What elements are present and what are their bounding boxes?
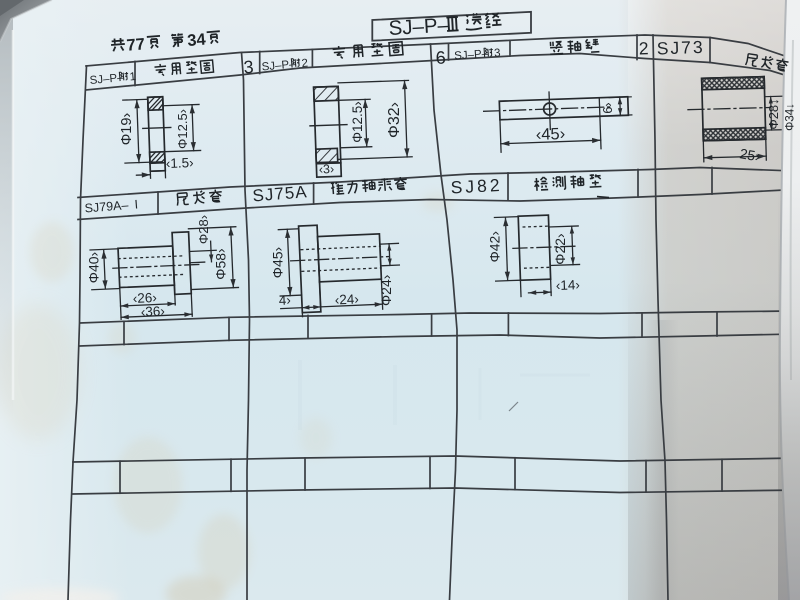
- svg-text:77: 77: [126, 35, 146, 54]
- svg-text:‹45›: ‹45›: [536, 125, 566, 144]
- svg-text:2: 2: [638, 38, 648, 58]
- svg-text:Φ12.5›: Φ12.5›: [175, 109, 190, 149]
- svg-text:6: 6: [435, 47, 446, 67]
- svg-text:Φ45›: Φ45›: [269, 246, 285, 278]
- svg-text:4›: 4›: [278, 292, 291, 308]
- svg-text:‹36›: ‹36›: [140, 303, 165, 319]
- svg-text:Φ12.5›: Φ12.5›: [350, 101, 365, 143]
- svg-text:‹24›: ‹24›: [334, 291, 359, 307]
- svg-text:‹3›: ‹3›: [319, 162, 335, 177]
- svg-text:Φ58›: Φ58›: [213, 248, 229, 280]
- svg-text:‹14›: ‹14›: [556, 277, 581, 293]
- svg-text:SJ82: SJ82: [450, 175, 503, 198]
- svg-text:6›: 6›: [601, 102, 615, 113]
- svg-text:Φ22›: Φ22›: [552, 233, 568, 265]
- svg-text:Φ28›: Φ28›: [196, 215, 211, 244]
- svg-text:SJ73: SJ73: [656, 37, 705, 59]
- svg-text:Φ19›: Φ19›: [119, 113, 135, 146]
- svg-text:Φ40›: Φ40›: [85, 251, 101, 283]
- svg-text:‹1.5›: ‹1.5›: [166, 155, 194, 171]
- svg-text:3: 3: [494, 47, 501, 59]
- svg-text:34: 34: [187, 30, 208, 49]
- svg-text:Φ28↓: Φ28↓: [766, 98, 781, 129]
- svg-text:SJ–P–: SJ–P–: [388, 14, 450, 40]
- svg-text:1: 1: [129, 71, 136, 84]
- svg-text:Φ32›: Φ32›: [386, 102, 403, 138]
- svg-text:Φ34↓: Φ34↓: [785, 103, 797, 131]
- svg-text:Φ42›: Φ42›: [487, 231, 503, 263]
- svg-text:Φ24›: Φ24›: [378, 274, 394, 306]
- svg-text:3: 3: [243, 57, 254, 78]
- svg-text:2: 2: [301, 57, 308, 70]
